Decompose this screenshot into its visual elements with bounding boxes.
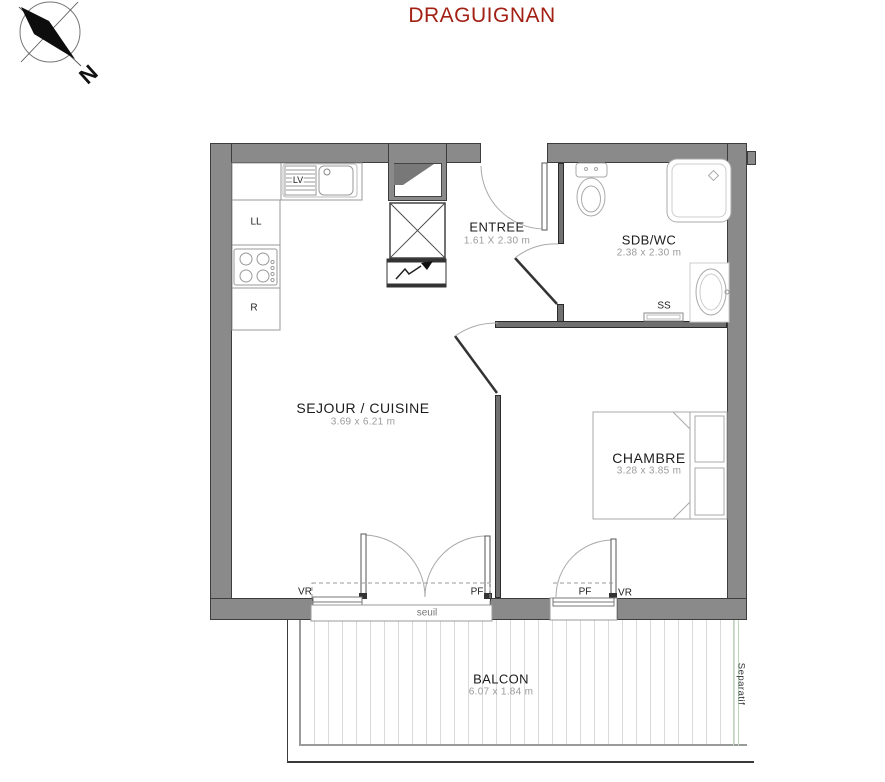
toilet-icon <box>576 163 607 216</box>
partition-sejour-chambre <box>495 395 501 598</box>
technical-shaft-inner <box>394 163 442 197</box>
fridge-label: R <box>250 303 257 314</box>
electrical-panel-icon <box>387 259 446 287</box>
towel-radiator-icon <box>644 313 683 321</box>
room-label-entree: ENTREE <box>469 220 524 235</box>
wall-top-right <box>547 143 747 163</box>
vr-label-sejour: VR <box>298 587 312 598</box>
room-dims-chambre: 3.28 x 3.85 m <box>617 466 682 477</box>
dishwasher-label: LV <box>292 175 304 185</box>
compass-cross-line <box>19 7 81 66</box>
vr-window-sejour <box>313 597 362 607</box>
room-dims-balcon: 6.07 x 1.84 m <box>469 687 534 698</box>
threshold-chambre <box>550 598 617 620</box>
floor-plan: DRAGUIGNAN N <box>0 0 885 782</box>
building-outline-vertical <box>287 620 288 762</box>
partition-sdb-chambre <box>495 321 727 328</box>
washbasin-icon <box>690 263 729 322</box>
compass-cross-line <box>21 2 78 62</box>
partition-entree-sdb <box>558 163 564 244</box>
compass-rose: N <box>5 0 120 105</box>
bathroom-door <box>515 244 558 304</box>
sink-icon <box>319 166 353 195</box>
technical-shaft <box>388 143 447 201</box>
vr-label-chambre: VR <box>618 588 632 599</box>
room-dims-sejour: 3.69 x 6.21 m <box>331 417 396 428</box>
seuil-threshold <box>311 605 492 621</box>
balcony-separator-line <box>733 620 734 746</box>
bedroom-door <box>455 323 498 393</box>
page-title: DRAGUIGNAN <box>408 4 555 28</box>
compass-north-label: N <box>74 60 103 89</box>
seuil-label: seuil <box>417 608 438 619</box>
pf-label-sejour: PF <box>471 587 484 598</box>
stove-icon <box>234 249 277 285</box>
compass-circle <box>20 2 80 62</box>
towel-radiator-label: SS <box>657 301 670 312</box>
room-dims-sdb: 2.38 x 2.30 m <box>617 248 682 259</box>
pf-dashed-zone-sejour <box>312 583 490 605</box>
wall-bottom-left <box>210 598 313 620</box>
vr-window-chambre <box>553 598 614 606</box>
wall-right <box>727 143 747 620</box>
room-label-sdb: SDB/WC <box>622 233 676 248</box>
compass-needle-icon <box>21 7 75 59</box>
wall-stub-right <box>747 151 756 165</box>
shower-icon <box>667 159 731 222</box>
wall-bottom-right <box>617 598 747 620</box>
room-label-chambre: CHAMBRE <box>612 450 686 466</box>
wall-left <box>210 143 232 620</box>
room-label-balcon: BALCON <box>473 672 529 687</box>
pf-label-chambre: PF <box>579 587 592 598</box>
separatif-label: Separatif <box>736 663 747 706</box>
building-outline-horizontal <box>287 761 754 763</box>
washing-machine-label: LL <box>250 217 261 228</box>
closet-icon <box>390 203 445 258</box>
wall-bottom-middle <box>490 598 553 620</box>
room-dims-entree: 1.61 X 2.30 m <box>464 236 530 247</box>
room-label-sejour: SEJOUR / CUISINE <box>296 400 429 416</box>
